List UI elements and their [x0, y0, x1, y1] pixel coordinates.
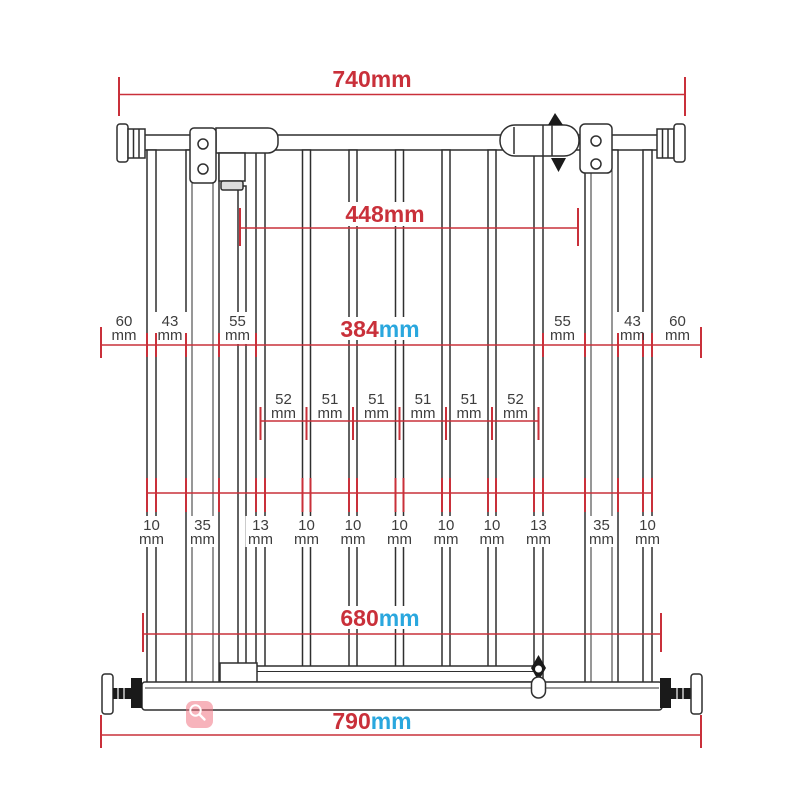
frame-bar-left-10	[147, 150, 156, 684]
svg-text:mm: mm	[248, 531, 273, 548]
svg-text:mm: mm	[387, 531, 412, 548]
adjuster-knob	[128, 129, 145, 158]
svg-text:mm: mm	[480, 531, 505, 548]
svg-text:mm: mm	[294, 531, 319, 548]
svg-text:mm: mm	[158, 327, 183, 344]
wall-pad	[117, 124, 128, 162]
threaded-rod	[113, 688, 133, 699]
diagram-canvas: 740mm 448mm 60 mm 43 mm 55 mm 384mm	[0, 0, 800, 800]
svg-text:mm: mm	[364, 405, 389, 422]
svg-text:mm: mm	[341, 531, 366, 548]
hinge-clamp	[219, 153, 245, 181]
dim-790-label: 790mm	[332, 708, 411, 734]
svg-text:mm: mm	[526, 531, 551, 548]
frame-post-left-35	[186, 150, 219, 684]
svg-text:mm: mm	[112, 327, 137, 344]
hinge-side-bar	[238, 186, 246, 666]
gate-dimension-diagram: 740mm 448mm 60 mm 43 mm 55 mm 384mm	[0, 0, 800, 800]
lock-nut	[131, 678, 142, 708]
svg-text:mm: mm	[434, 531, 459, 548]
arrow-down-icon	[551, 158, 566, 172]
svg-text:mm: mm	[318, 405, 343, 422]
wall-pad	[102, 674, 113, 714]
zoom-magnifier-watermark	[186, 701, 213, 728]
svg-text:mm: mm	[411, 405, 436, 422]
frame-post-right-35	[585, 150, 618, 684]
threaded-rod	[671, 688, 691, 699]
dim-448: 448mm	[240, 201, 578, 246]
dim-740: 740mm	[119, 66, 685, 116]
svg-text:mm: mm	[635, 531, 660, 548]
svg-text:mm: mm	[271, 405, 296, 422]
svg-text:mm: mm	[589, 531, 614, 548]
svg-text:mm: mm	[665, 327, 690, 344]
hinge-foot	[221, 181, 243, 190]
svg-text:mm: mm	[620, 327, 645, 344]
svg-text:mm: mm	[550, 327, 575, 344]
screw-hole-icon	[198, 164, 208, 174]
svg-text:mm: mm	[139, 531, 164, 548]
latch-handle	[500, 125, 579, 156]
frame-bar-right-10	[643, 150, 652, 684]
wall-pad	[691, 674, 702, 714]
screw-hole-icon	[591, 136, 601, 146]
svg-text:mm: mm	[190, 531, 215, 548]
arrow-up-icon	[548, 113, 563, 125]
svg-text:mm: mm	[457, 405, 482, 422]
pressure-fitting-bottom-left	[102, 674, 142, 714]
dim-680-label: 680mm	[340, 605, 419, 631]
right-latch-assembly	[500, 113, 612, 173]
bottom-hinge-block	[220, 663, 257, 682]
pressure-fitting-top-right	[657, 124, 685, 162]
dim-448-label: 448mm	[345, 201, 424, 227]
svg-text:mm: mm	[503, 405, 528, 422]
pressure-fitting-bottom-right	[660, 674, 702, 714]
lock-nut	[660, 678, 671, 708]
dim-740-label: 740mm	[332, 66, 411, 92]
adjuster-knob	[657, 129, 674, 158]
screw-hole-icon	[198, 139, 208, 149]
dim-384-label: 384mm	[340, 316, 419, 342]
screw-hole-icon	[591, 159, 601, 169]
hinge-housing	[216, 128, 278, 153]
wall-pad	[674, 124, 685, 162]
pressure-fitting-top-left	[117, 124, 145, 162]
bottom-rail	[142, 663, 662, 710]
svg-text:mm: mm	[225, 327, 250, 344]
